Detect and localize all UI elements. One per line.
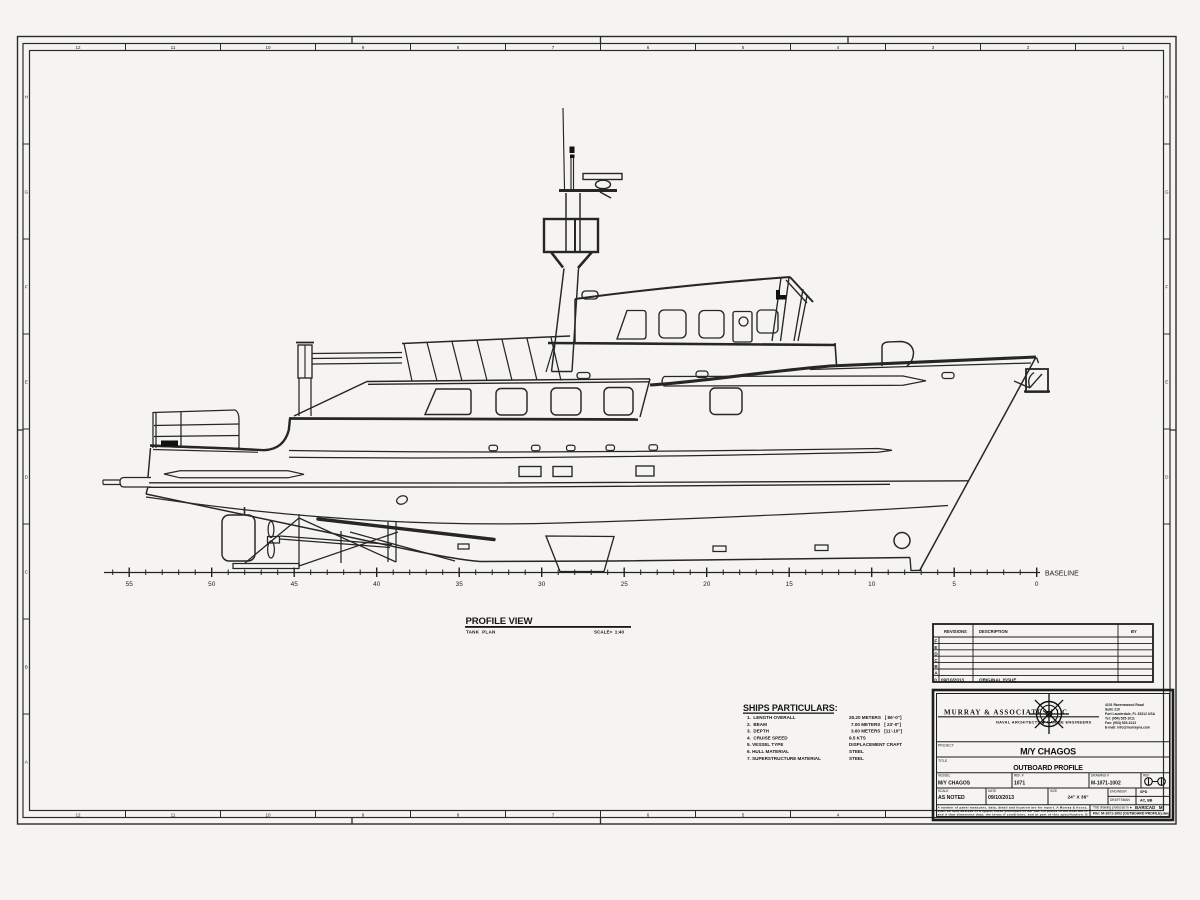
svg-text:SIZE: SIZE xyxy=(1050,789,1057,793)
svg-text:G: G xyxy=(25,190,29,195)
svg-text:DATE: DATE xyxy=(988,789,996,793)
svg-text:7: 7 xyxy=(552,45,555,50)
svg-text:E: E xyxy=(1165,380,1168,385)
svg-text:STEEL: STEEL xyxy=(849,756,864,761)
svg-text:10: 10 xyxy=(868,581,876,588)
svg-text:5: 5 xyxy=(952,581,956,588)
svg-text:5: 5 xyxy=(742,45,745,50)
svg-text:0: 0 xyxy=(934,677,937,682)
svg-text:TANK PLAN: TANK PLAN xyxy=(466,630,496,635)
svg-text:7: 7 xyxy=(552,812,555,817)
svg-text:12: 12 xyxy=(75,45,81,50)
svg-text:1071: 1071 xyxy=(1014,781,1025,787)
svg-text:15: 15 xyxy=(786,581,794,588)
svg-text:DISPLACEMENT CRAFT: DISPLACEMENT CRAFT xyxy=(849,742,902,747)
svg-text:REF: REF xyxy=(1143,774,1149,778)
svg-text:5. VESSEL TYPE: 5. VESSEL TYPE xyxy=(747,742,783,747)
svg-text:8: 8 xyxy=(457,45,460,50)
svg-text:4. CRUISE SPEED: 4. CRUISE SPEED xyxy=(747,735,788,740)
svg-text:4: 4 xyxy=(837,45,840,50)
svg-text:6. HULL MATERIAL: 6. HULL MATERIAL xyxy=(747,749,789,754)
svg-text:This drawing produced in ►: This drawing produced in ► xyxy=(1093,806,1133,810)
svg-text:G: G xyxy=(1165,190,1169,195)
svg-text:9.5 KTS: 9.5 KTS xyxy=(849,735,866,740)
svg-text:DESCRIPTION: DESCRIPTION xyxy=(979,629,1008,634)
svg-text:SCALE= 1:40: SCALE= 1:40 xyxy=(594,630,624,635)
svg-text:REF. #: REF. # xyxy=(1014,774,1024,778)
svg-text:1: 1 xyxy=(1122,45,1125,50)
svg-text:10: 10 xyxy=(265,812,271,817)
svg-text:REVISIONS: REVISIONS xyxy=(944,629,967,634)
svg-text:1. LENGTH OVERALL: 1. LENGTH OVERALL xyxy=(747,715,796,720)
svg-text:B: B xyxy=(25,665,28,670)
svg-text:PROJECT: PROJECT xyxy=(938,744,954,748)
svg-text:6: 6 xyxy=(647,45,650,50)
svg-text:SPD: SPD xyxy=(1140,790,1148,794)
svg-text:11: 11 xyxy=(171,45,176,50)
svg-text:2. BEAM: 2. BEAM xyxy=(747,722,767,727)
svg-text:STEEL: STEEL xyxy=(849,749,864,754)
svg-text:0: 0 xyxy=(1035,581,1039,588)
svg-text:30: 30 xyxy=(538,581,546,588)
svg-text:E: E xyxy=(934,645,937,650)
svg-text:OUTBOARD PROFILE: OUTBOARD PROFILE xyxy=(1013,765,1083,772)
svg-text:E-mail: info@murrayna.com: E-mail: info@murrayna.com xyxy=(1105,726,1150,730)
svg-text:8: 8 xyxy=(457,812,460,817)
svg-text:ORIGINAL ISSUE: ORIGINAL ISSUE xyxy=(979,677,1016,682)
svg-text:09/10/2013: 09/10/2013 xyxy=(988,795,1014,801)
svg-text:20: 20 xyxy=(703,581,711,588)
svg-text:BY: BY xyxy=(1131,629,1137,634)
svg-text:ENGINEER: ENGINEER xyxy=(1110,789,1127,793)
svg-text:3: 3 xyxy=(932,45,935,50)
svg-text:Tel: (954) 525-1011: Tel: (954) 525-1011 xyxy=(1105,717,1135,721)
svg-text:BASELINE: BASELINE xyxy=(1045,571,1079,578)
svg-text:AS NOTED: AS NOTED xyxy=(938,795,965,801)
svg-text:M/Y CHAGOS: M/Y CHAGOS xyxy=(1020,747,1076,757)
svg-text:and it that dimension data, th: and it that dimension data, the terms if… xyxy=(938,812,1089,816)
svg-text:H: H xyxy=(1165,95,1168,100)
svg-text:26.20 METERS [ 86'-0"]: 26.20 METERS [ 86'-0"] xyxy=(849,715,902,720)
svg-text:3. DEPTH: 3. DEPTH xyxy=(747,729,770,734)
svg-text:SCALE: SCALE xyxy=(938,789,948,793)
svg-text:BARICAD M: BARICAD M xyxy=(1135,805,1163,810)
svg-text:45: 45 xyxy=(291,581,299,588)
svg-text:F: F xyxy=(1165,285,1168,290)
svg-text:5: 5 xyxy=(742,812,745,817)
svg-text:PROFILE VIEW: PROFILE VIEW xyxy=(466,616,534,627)
svg-text:12: 12 xyxy=(75,812,81,817)
svg-text:9: 9 xyxy=(362,812,365,817)
svg-text:H: H xyxy=(25,95,28,100)
svg-text:DRAWING #: DRAWING # xyxy=(1091,774,1109,778)
svg-text:SHIPS PARTICULARS:: SHIPS PARTICULARS: xyxy=(743,703,838,713)
svg-text:Suite 210: Suite 210 xyxy=(1105,708,1120,712)
svg-text:24" X 36": 24" X 36" xyxy=(1067,795,1088,801)
svg-text:50: 50 xyxy=(208,581,216,588)
svg-text:M-1071-1002: M-1071-1002 xyxy=(1091,781,1121,787)
svg-text:7. SUPERSTRUCTURE MATERIAL: 7. SUPERSTRUCTURE MATERIAL xyxy=(747,756,821,761)
svg-text:7.00 METERS [ 23'-0"]: 7.00 METERS [ 23'-0"] xyxy=(851,722,901,727)
svg-text:4101 Ravenswood Road: 4101 Ravenswood Road xyxy=(1105,703,1144,707)
svg-text:6: 6 xyxy=(647,812,650,817)
svg-text:55: 55 xyxy=(126,581,134,588)
svg-text:AC, BB: AC, BB xyxy=(1140,798,1153,802)
svg-text:40: 40 xyxy=(373,581,381,588)
svg-text:File: M-1071-1002 (OUTBOARD PR: File: M-1071-1002 (OUTBOARD PROFILE).dwg xyxy=(1093,812,1170,816)
svg-text:4: 4 xyxy=(837,812,840,817)
svg-text:Fort Lauderdale, FL 33312 USA: Fort Lauderdale, FL 33312 USA xyxy=(1105,712,1156,716)
svg-text:09/10/2013: 09/10/2013 xyxy=(941,677,964,682)
svg-text:DRAFTSMAN: DRAFTSMAN xyxy=(1110,798,1131,802)
svg-text:F: F xyxy=(934,639,937,644)
svg-text:35: 35 xyxy=(456,581,464,588)
svg-text:VESSEL: VESSEL xyxy=(938,774,951,778)
svg-text:E: E xyxy=(25,380,28,385)
svg-text:F: F xyxy=(25,285,28,290)
svg-text:25: 25 xyxy=(621,581,629,588)
svg-text:2: 2 xyxy=(1027,45,1030,50)
svg-text:TITLE: TITLE xyxy=(938,759,948,763)
svg-text:Fax: (954) 525-1012: Fax: (954) 525-1012 xyxy=(1105,721,1136,725)
svg-text:3.60 METERS [11'-10"]: 3.60 METERS [11'-10"] xyxy=(851,729,902,734)
svg-text:9: 9 xyxy=(362,45,365,50)
svg-text:11: 11 xyxy=(171,812,176,817)
svg-text:10: 10 xyxy=(265,45,271,50)
svg-text:M/Y CHAGOS: M/Y CHAGOS xyxy=(938,781,971,787)
svg-text:NAVAL ARCHITECTS ◆ MARINE ENGI: NAVAL ARCHITECTS ◆ MARINE ENGINEERS xyxy=(996,720,1092,725)
